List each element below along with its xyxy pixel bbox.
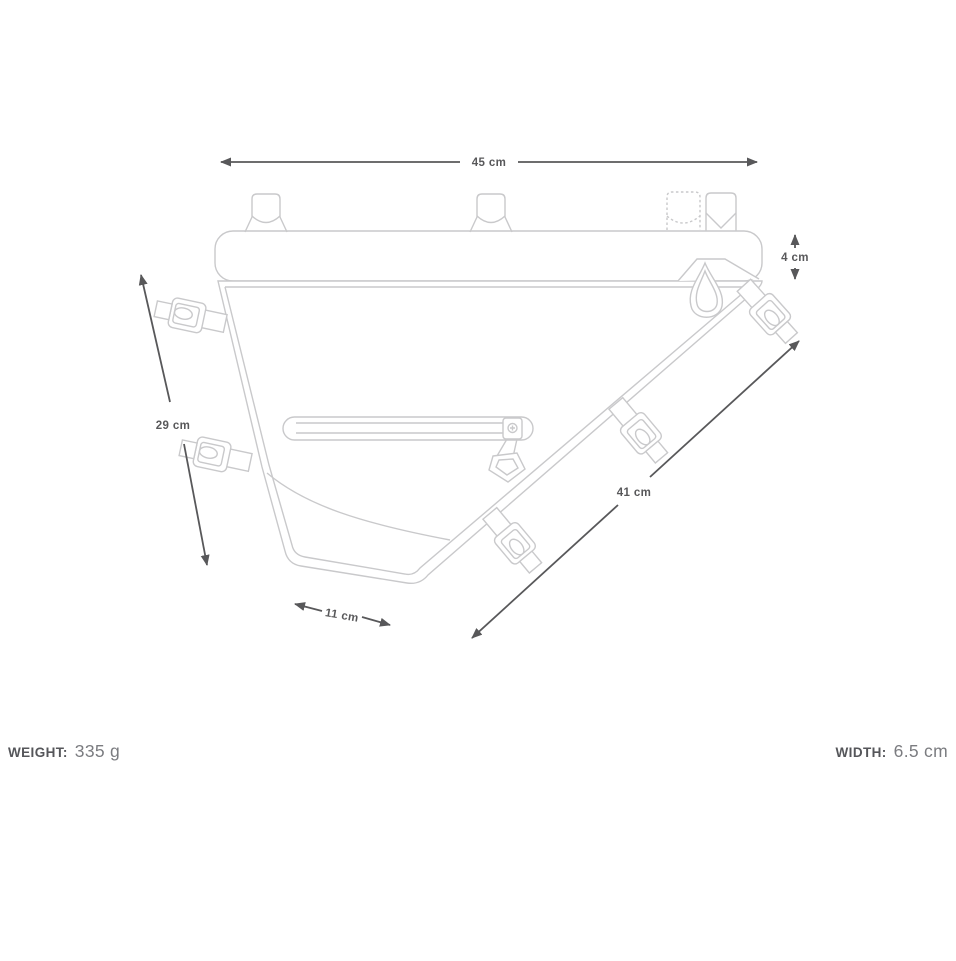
weight-value: 335 g	[75, 741, 120, 762]
diagonal-strap-bottom	[478, 504, 547, 578]
diagonal-strap-middle	[604, 394, 673, 468]
width-value: 6.5 cm	[894, 741, 948, 762]
weight-label: WEIGHT:	[8, 745, 68, 760]
dim-bottom-width-label: 11 cm	[324, 607, 360, 625]
top-strap-tab-3	[706, 193, 736, 231]
spec-footer: WEIGHT: 335 g WIDTH: 6.5 cm	[0, 741, 956, 771]
top-tube-sleeve	[215, 231, 762, 281]
dim-tube-height: 4 cm	[781, 235, 809, 279]
dim-tube-height-label: 4 cm	[781, 252, 809, 264]
dim-diagonal-length-label: 41 cm	[617, 487, 652, 499]
dim-top-width: 45 cm	[221, 157, 757, 169]
frame-bag-diagram: 45 cm 4 cm 29 cm 41 cm 11 cm	[0, 0, 956, 956]
top-strap-tab-ghost	[667, 192, 700, 230]
top-strap-tab-1	[245, 194, 287, 232]
dim-top-width-label: 45 cm	[472, 157, 507, 169]
dim-left-height-label: 29 cm	[156, 420, 191, 432]
width-label: WIDTH:	[836, 745, 887, 760]
weight-spec: WEIGHT: 335 g	[8, 741, 120, 762]
zipper-track	[283, 417, 533, 440]
diagonal-strap-top	[733, 275, 803, 348]
bag-artwork	[153, 192, 803, 583]
width-spec: WIDTH: 6.5 cm	[836, 741, 948, 762]
dim-bottom-width: 11 cm	[295, 604, 390, 625]
left-buckle-top	[153, 294, 229, 338]
top-strap-tab-2	[470, 194, 512, 232]
